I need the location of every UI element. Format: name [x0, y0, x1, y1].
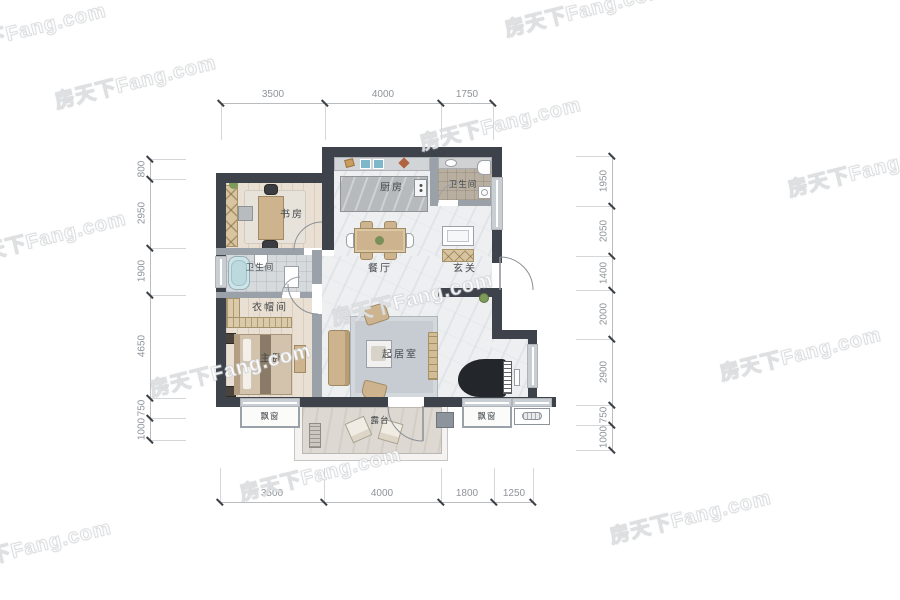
watermark: 房天下Fang.com — [0, 511, 114, 579]
label-living: 起居室 — [382, 346, 418, 361]
dim-ext — [576, 156, 612, 157]
dim-left-4: 4650 — [137, 335, 148, 357]
wall-suite-lower — [312, 314, 322, 397]
ladder-shelf — [428, 332, 438, 380]
dim-ext — [150, 179, 186, 180]
kitchen-sink-left — [360, 159, 371, 169]
dim-right-1: 1950 — [599, 170, 610, 192]
watermark: 房天下Fang.com — [716, 318, 884, 386]
bathtub-inner — [231, 260, 247, 286]
planter-box — [436, 412, 454, 428]
kitchen-sink-right — [373, 159, 384, 169]
dim-top-2: 4000 — [372, 89, 394, 100]
wall-study-bottom — [216, 248, 304, 255]
label-study: 书房 — [280, 206, 304, 221]
watermark: 房天下Fang.com — [51, 46, 219, 114]
dining-chair-left — [346, 233, 354, 248]
dim-left-2: 2950 — [137, 202, 148, 224]
dim-right-5: 2900 — [599, 361, 610, 383]
grand-piano-body — [458, 359, 506, 397]
wall-bath-left-bottom-a — [216, 292, 282, 298]
wall-top-study — [216, 173, 334, 183]
dim-ext — [494, 468, 495, 502]
dim-ext — [220, 468, 221, 502]
watermark: 房天下Fang.com — [606, 481, 774, 549]
dim-ext — [576, 206, 612, 207]
dim-ext — [150, 418, 186, 419]
watermark: 房天下Fang.com — [0, 202, 129, 270]
dim-ext — [325, 103, 326, 140]
dim-ext — [576, 256, 612, 257]
window-left-wall — [215, 256, 227, 288]
dim-ext — [533, 468, 534, 502]
watermark: 房天下Fang.com — [0, 0, 109, 62]
label-terrace: 露台 — [370, 414, 389, 426]
dim-bottom-2: 4000 — [371, 488, 393, 499]
floorplan-canvas: 书房 厨房 卫生间 餐厅 玄关 卫生间 衣帽间 主卧 起居室 飘窗 露台 飘窗 … — [0, 0, 900, 600]
wall-suite-upper — [312, 250, 322, 284]
bath-top-washer-drum — [481, 189, 488, 196]
terrace-ac-unit — [309, 423, 321, 448]
bath-top-sink — [445, 159, 457, 167]
label-bay-left: 飘窗 — [260, 410, 279, 422]
label-bath-left: 卫生间 — [246, 261, 275, 273]
kitchen-stove-burners — [417, 183, 425, 193]
piano-keys — [503, 361, 512, 394]
cloak-shelf-bottom — [226, 317, 292, 328]
wall-divider-study — [322, 147, 334, 250]
dim-ext — [150, 440, 186, 441]
wall-bath-top-bottom-a — [430, 200, 438, 206]
label-bay-right: 飘窗 — [477, 410, 496, 422]
bath-left-vanity — [284, 266, 299, 288]
dim-ext — [576, 339, 612, 340]
dining-centerpiece — [375, 236, 384, 245]
dim-right-3: 1400 — [599, 262, 610, 284]
wall-bath-top-left — [430, 157, 438, 206]
dim-bottom-3: 1800 — [456, 488, 478, 499]
dim-ext — [441, 468, 442, 502]
bath-top-toilet — [477, 160, 491, 175]
window-right-wall — [491, 177, 503, 230]
dim-ext — [221, 103, 222, 140]
terrace-door-gap — [388, 397, 424, 407]
watermark: 房天下Fang.com — [784, 134, 900, 202]
watermark: 房天下Fang.com — [416, 88, 584, 156]
label-dining: 餐厅 — [368, 260, 392, 275]
window-nook-wall — [527, 344, 538, 388]
dim-ext — [576, 450, 612, 451]
dim-ext — [150, 159, 186, 160]
wall-top-kitchen — [322, 147, 502, 157]
dim-left-3: 1900 — [137, 260, 148, 282]
dim-bottom-4: 1250 — [503, 488, 525, 499]
dim-line-top — [221, 103, 493, 104]
wall-bath-left-bottom-b — [300, 292, 312, 298]
dim-right-2: 2050 — [599, 220, 610, 242]
sofa — [328, 330, 350, 386]
label-bath-top: 卫生间 — [449, 178, 478, 190]
window-sill-bay-right — [462, 398, 512, 407]
piano-bench — [514, 369, 520, 386]
dim-ext — [150, 295, 186, 296]
cloak-shelf-side — [226, 298, 240, 318]
label-kitchen: 厨房 — [380, 179, 404, 194]
dim-ext — [576, 290, 612, 291]
window-sill-right — [512, 398, 552, 407]
dim-ext — [150, 248, 186, 249]
dim-right-4: 2000 — [599, 303, 610, 325]
study-side-table — [238, 206, 253, 221]
dim-line-bottom — [220, 502, 533, 503]
dining-chair-right — [406, 233, 414, 248]
watermark: 房天下Fang.com — [501, 0, 669, 42]
study-chair-top — [264, 184, 278, 195]
label-cloakroom: 衣帽间 — [252, 299, 288, 314]
entry-door-arc — [500, 257, 533, 290]
entry-cabinet-inner — [447, 230, 469, 242]
exterior-window-blinds — [522, 412, 542, 420]
window-sill-bay-left — [240, 398, 300, 407]
dim-right-7: 1000 — [599, 426, 610, 448]
dim-top-3: 1750 — [456, 89, 478, 100]
dim-top-1: 3500 — [262, 89, 284, 100]
